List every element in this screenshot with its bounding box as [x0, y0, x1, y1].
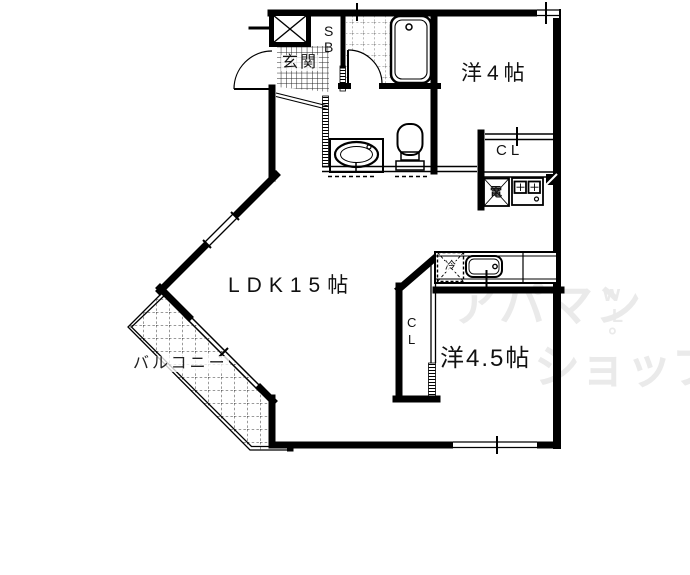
label-western-room-4: 洋4帖 [461, 63, 530, 84]
label-refrigerator: 冷 [444, 261, 457, 272]
entrance-door-arc [234, 51, 272, 89]
label-closet-upper: CL [496, 143, 523, 158]
bathroom-side-door [340, 66, 346, 91]
label-closet-lower-top: C [407, 316, 416, 329]
label-water-heater: 電 [490, 186, 502, 198]
label-entrance: 玄関 [281, 55, 319, 71]
label-closet-lower-bottom: L [408, 333, 415, 346]
floor-plan: アパマン ショップ w L ° [0, 0, 690, 575]
vent-symbol [546, 174, 557, 185]
pipe-shaft-box [272, 14, 309, 45]
bathtub-symbol [391, 16, 431, 83]
stove-symbol [512, 178, 543, 205]
label-balcony: バルコニー [132, 356, 229, 372]
label-shoebox-top: S [324, 24, 333, 38]
closet-lower-folding-door [429, 363, 436, 398]
hall-washroom-door [323, 96, 329, 167]
label-western-room-4-5: 洋4.5帖 [440, 347, 531, 371]
toilet-symbol [396, 124, 424, 170]
label-shoebox-bottom: B [324, 40, 333, 54]
entrance-step-line [276, 93, 328, 110]
label-ldk: LDK15帖 [228, 275, 355, 296]
